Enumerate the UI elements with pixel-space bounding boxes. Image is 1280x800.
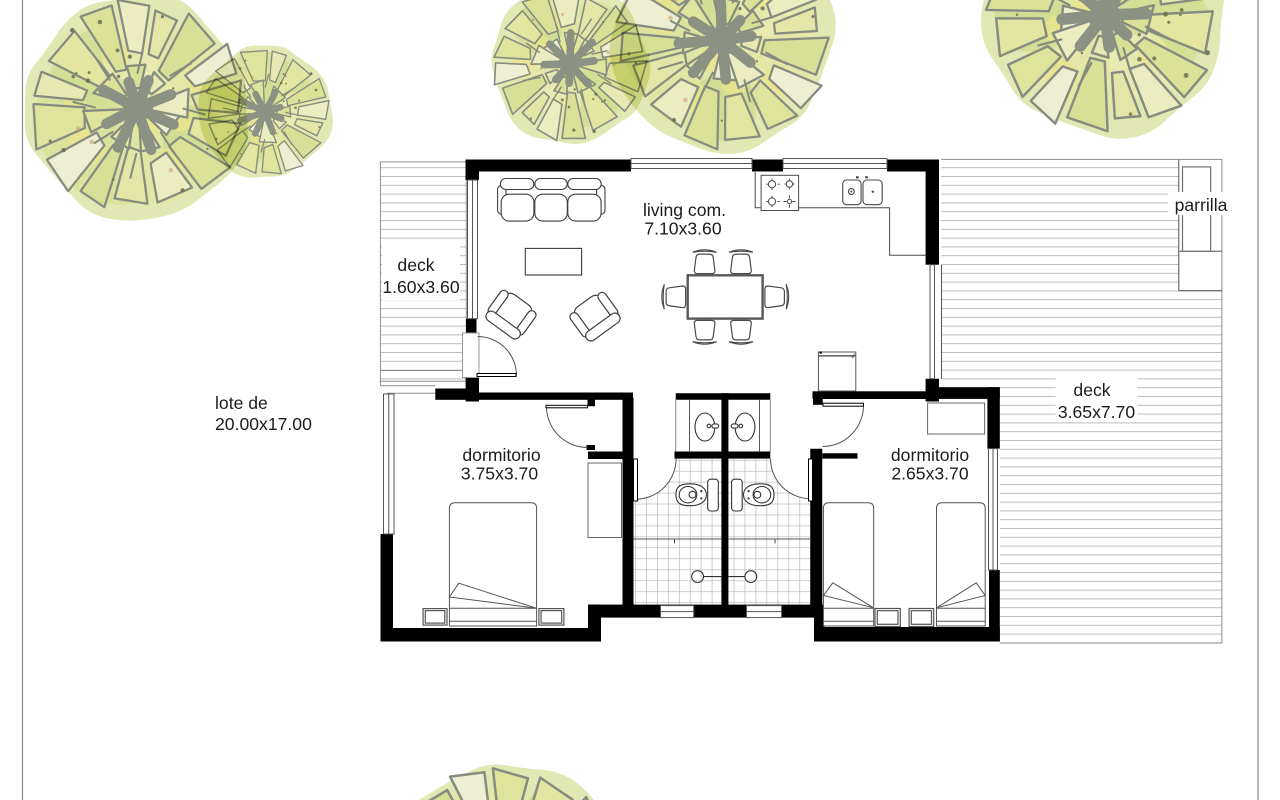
svg-text:deck: deck <box>1073 380 1110 400</box>
svg-text:3.75x3.70: 3.75x3.70 <box>461 464 538 484</box>
svg-text:dormitorio: dormitorio <box>891 445 969 465</box>
svg-text:deck: deck <box>397 255 434 275</box>
svg-text:2.65x3.70: 2.65x3.70 <box>891 464 968 484</box>
svg-text:1.60x3.60: 1.60x3.60 <box>382 277 459 297</box>
svg-text:dormitorio: dormitorio <box>462 445 540 465</box>
svg-text:lote de: lote de <box>215 393 268 413</box>
svg-text:living com.: living com. <box>643 200 726 220</box>
svg-text:parrilla: parrilla <box>1175 195 1228 215</box>
svg-text:7.10x3.60: 7.10x3.60 <box>644 219 721 239</box>
svg-text:20.00x17.00: 20.00x17.00 <box>215 414 312 434</box>
svg-text:3.65x7.70: 3.65x7.70 <box>1058 402 1135 422</box>
